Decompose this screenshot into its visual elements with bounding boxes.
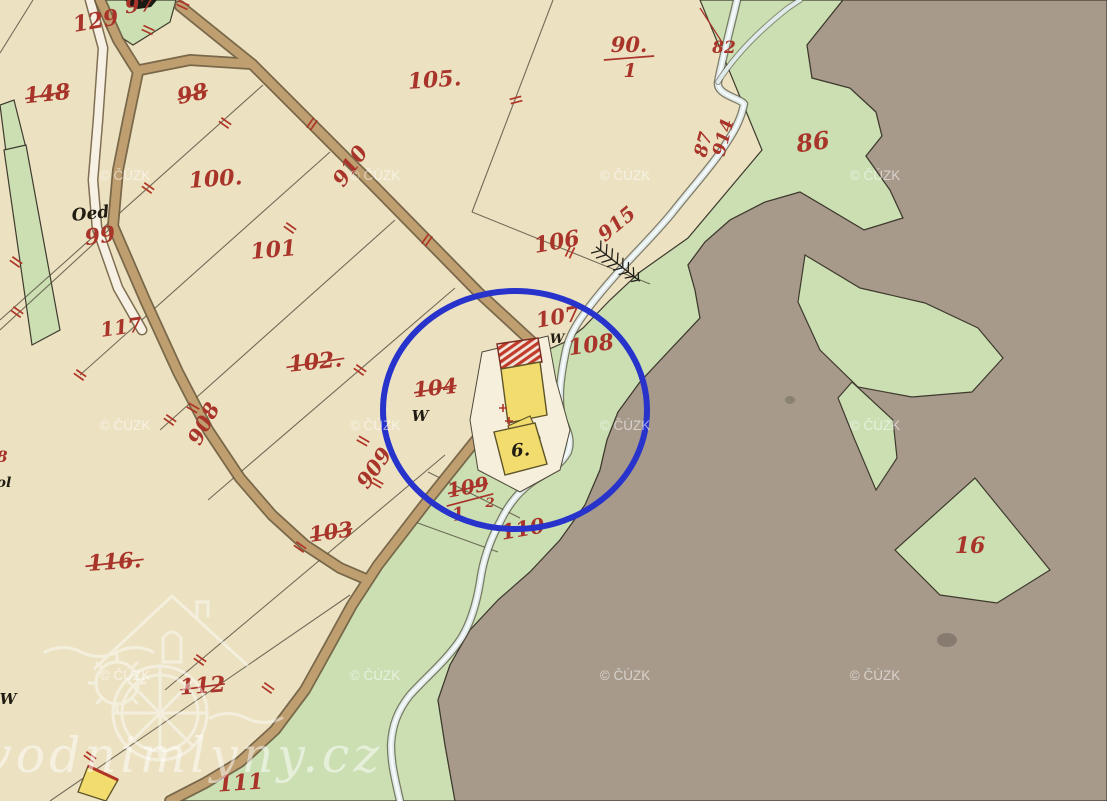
svg-text:90.: 90. [611,32,648,57]
map-label-2: 2 [484,496,494,511]
map-label-W: W [550,332,566,347]
map-label-82: 82 [711,38,736,58]
map-label-Oed: Oed [71,202,111,226]
map-label-99: 99 [83,221,117,251]
map-stain [937,633,957,647]
svg-text:8: 8 [0,447,8,466]
map-label-ol: ol [0,475,11,491]
svg-text:Oed: Oed [71,202,111,226]
map-label-16: 16 [955,533,986,559]
map-label-6: 6. [510,439,531,462]
building-wooden-main [501,362,547,423]
cuzk-watermark: © ČÚZK [850,168,900,183]
cuzk-watermark: © ČÚZK [100,168,150,183]
cuzk-watermark: © ČÚZK [600,168,650,183]
cuzk-watermark: © ČÚZK [100,418,150,433]
map-label-104: 104 [412,373,458,402]
svg-text:6.: 6. [510,439,531,462]
svg-text:2: 2 [484,496,494,511]
map-label-100: 100. [188,164,243,194]
cuzk-watermark: © ČÚZK [350,668,400,683]
svg-text:100.: 100. [188,164,243,194]
cadastral-map[interactable]: 1299714898100.101105.8286879149151061071… [0,0,1107,801]
map-label-W: W [412,407,431,425]
svg-text:82: 82 [711,38,736,58]
svg-text:W: W [550,332,566,347]
cuzk-watermark: © ČÚZK [600,418,650,433]
site-watermark-text: vodnimlyny.cz [0,727,383,784]
svg-text:1: 1 [623,60,636,82]
svg-text:104: 104 [412,373,458,402]
map-label-116: 116. [84,547,144,577]
cuzk-watermark: © ČÚZK [350,168,400,183]
cuzk-watermark: © ČÚZK [350,418,400,433]
cadastral-map-viewport: 1299714898100.101105.8286879149151061071… [0,0,1107,801]
svg-text:16: 16 [955,533,986,559]
cuzk-watermark: © ČÚZK [850,418,900,433]
map-label-105: 105. [407,65,462,95]
svg-text:W: W [0,690,19,708]
svg-text:86: 86 [793,125,831,159]
map-label-8: 8 [0,447,8,466]
cuzk-watermark: © ČÚZK [600,668,650,683]
map-label-148: 148 [23,79,71,110]
svg-text:99: 99 [83,221,117,251]
map-label-W: W [0,690,19,708]
map-label-101: 101 [249,235,297,265]
svg-text:101: 101 [249,235,297,265]
cuzk-watermark: © ČÚZK [850,668,900,683]
svg-text:97: 97 [124,0,156,18]
svg-text:ol: ol [0,475,11,491]
map-label-97: 97 [124,0,156,18]
map-stain-small [785,396,795,404]
map-label-86: 86 [793,125,831,159]
svg-text:W: W [412,407,431,425]
svg-text:105.: 105. [407,65,462,95]
